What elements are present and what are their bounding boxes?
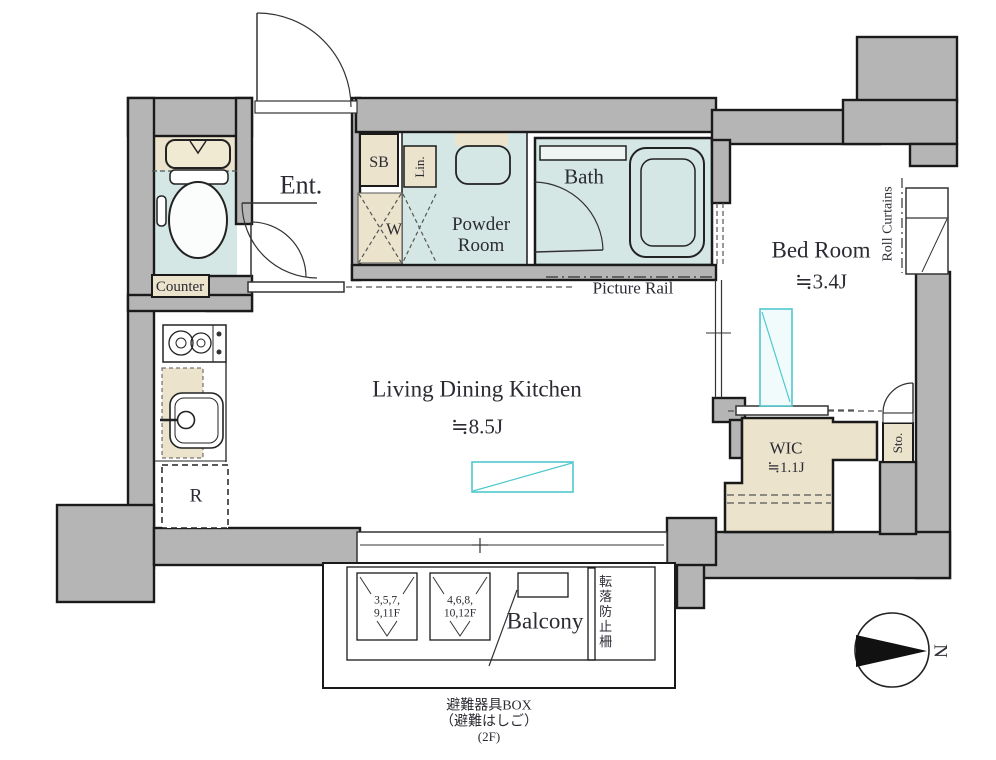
picture-rail-label: Picture Rail bbox=[593, 280, 674, 299]
roll-curtains-label: Roll Curtains bbox=[880, 186, 895, 261]
floor-plan-canvas: Counter Ent. SB Lin. W Powder Room Bath … bbox=[0, 0, 996, 760]
linen-label: Lin. bbox=[413, 156, 427, 177]
bedroom-size-label: ≒3.4J bbox=[795, 270, 847, 293]
wic-label: WIC bbox=[769, 440, 802, 459]
evacuation-box-line2: （避難はしご） bbox=[440, 714, 538, 729]
powder-room-label: Powder Room bbox=[433, 215, 529, 257]
shoe-box-label: SB bbox=[369, 154, 389, 172]
balcony-structure bbox=[323, 563, 675, 688]
counter-label: Counter bbox=[156, 279, 204, 296]
balcony-label: Balcony bbox=[507, 608, 584, 633]
compass-north-label: N bbox=[929, 644, 950, 658]
fall-prevention-fence-label: 転落防止柵 bbox=[597, 575, 611, 650]
washer-label: W bbox=[386, 221, 402, 240]
hatch-even-floors-line1: 4,6,8, bbox=[447, 595, 473, 608]
ldk-label: Living Dining Kitchen bbox=[372, 376, 582, 401]
wic-size-label: ≒1.1J bbox=[767, 460, 804, 477]
ldk-size-label: ≒8.5J bbox=[451, 415, 503, 438]
storage-label: Sto. bbox=[891, 433, 905, 454]
refrigerator-label: R bbox=[190, 487, 203, 508]
bedroom-label: Bed Room bbox=[771, 237, 870, 262]
compass-icon bbox=[855, 613, 929, 687]
entrance-label: Ent. bbox=[280, 172, 323, 201]
hatch-odd-floors-line2: 9,11F bbox=[374, 608, 400, 621]
hatch-odd-floors-line1: 3,5,7, bbox=[374, 595, 400, 608]
evacuation-box-line1: 避難器具BOX bbox=[446, 698, 532, 713]
evacuation-box-line3: (2F) bbox=[478, 730, 500, 744]
hatch-even-floors-line2: 10,12F bbox=[444, 608, 476, 621]
bath-label: Bath bbox=[564, 165, 604, 188]
